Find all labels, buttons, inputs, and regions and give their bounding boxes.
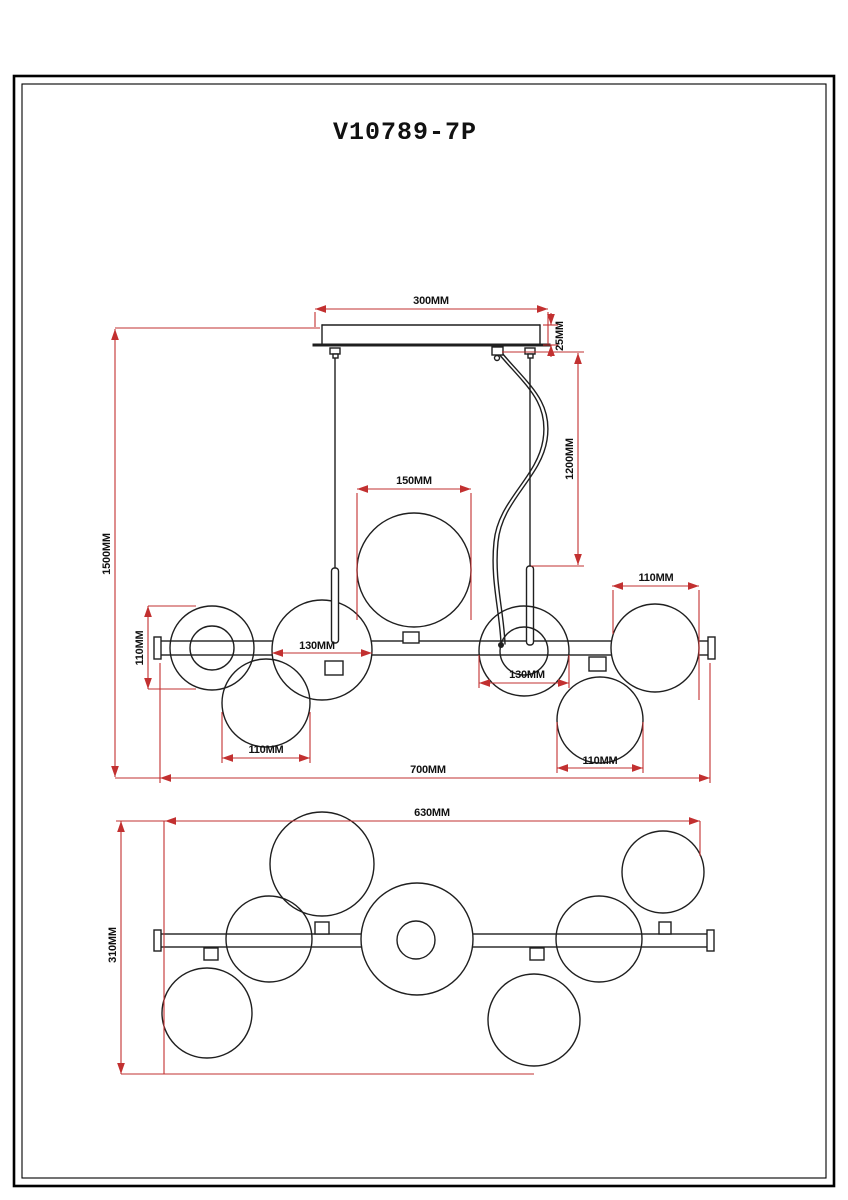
dim-right-mid-globe: 130MM bbox=[509, 669, 545, 681]
canopy-screw-right bbox=[525, 348, 535, 354]
dim-overall-depth: 310MM bbox=[107, 927, 119, 963]
dim-left-globe: 110MM bbox=[134, 630, 146, 665]
dim-canopy-height: 25MM bbox=[554, 321, 566, 351]
canopy-screw-right-tip bbox=[528, 354, 533, 358]
plan-globe-bottom-left bbox=[162, 968, 252, 1058]
ceiling-canopy bbox=[314, 325, 549, 361]
socket-center bbox=[403, 632, 419, 643]
plan-bar-end-cap-right bbox=[707, 930, 714, 951]
dim-left-mid-globe: 130MM bbox=[299, 640, 335, 652]
bar-end-cap-right bbox=[708, 637, 715, 659]
canopy-screw-left bbox=[330, 348, 340, 354]
globe-bottom-right bbox=[557, 677, 643, 763]
dim-canopy-width: 300MM bbox=[413, 295, 449, 307]
plan-bar-end-cap-left bbox=[154, 930, 161, 951]
drawing-title: V10789-7P bbox=[333, 118, 477, 147]
plan-globe-center bbox=[361, 883, 473, 995]
dim-bottom-right-globe: 110MM bbox=[582, 755, 617, 767]
canopy-screw-left-tip bbox=[333, 354, 338, 358]
dim-center-globe: 150MM bbox=[396, 475, 432, 487]
suspension-rod-left bbox=[332, 568, 339, 643]
power-cord-line-2 bbox=[497, 353, 548, 644]
dim-top-right-globe: 110MM bbox=[638, 572, 673, 584]
plan-globe-top-left bbox=[270, 812, 374, 916]
plan-view: 630MM 310MM bbox=[107, 807, 714, 1074]
dim-bottom-left-globe: 110MM bbox=[248, 744, 283, 756]
plan-globe-bottom-right bbox=[488, 974, 580, 1066]
dim-cord-drop: 1200MM bbox=[564, 438, 576, 480]
front-view: 300MM 25MM 1200MM 1500MM 150MM bbox=[101, 295, 715, 783]
cord-gland-tip bbox=[495, 356, 500, 361]
dim-inner-width: 630MM bbox=[414, 807, 450, 819]
cord-gland bbox=[492, 347, 503, 355]
plan-globe-top-right bbox=[622, 831, 704, 913]
socket-bottom-right bbox=[589, 657, 606, 671]
socket-bottom-left bbox=[325, 661, 343, 675]
bar-end-cap-left bbox=[154, 637, 161, 659]
technical-drawing-svg: V10789-7P bbox=[0, 0, 848, 1200]
dim-overall-width: 700MM bbox=[410, 764, 446, 776]
globe-center-top bbox=[357, 513, 471, 627]
plan-socket-top-left bbox=[315, 922, 329, 934]
globe-top-right bbox=[611, 604, 699, 692]
plan-socket-bottom-right bbox=[530, 948, 544, 960]
plan-socket-bottom-left bbox=[204, 948, 218, 960]
plan-socket-top-right bbox=[659, 922, 671, 934]
globe-bottom-left bbox=[222, 659, 310, 747]
dim-overall-drop: 1500MM bbox=[101, 533, 113, 575]
